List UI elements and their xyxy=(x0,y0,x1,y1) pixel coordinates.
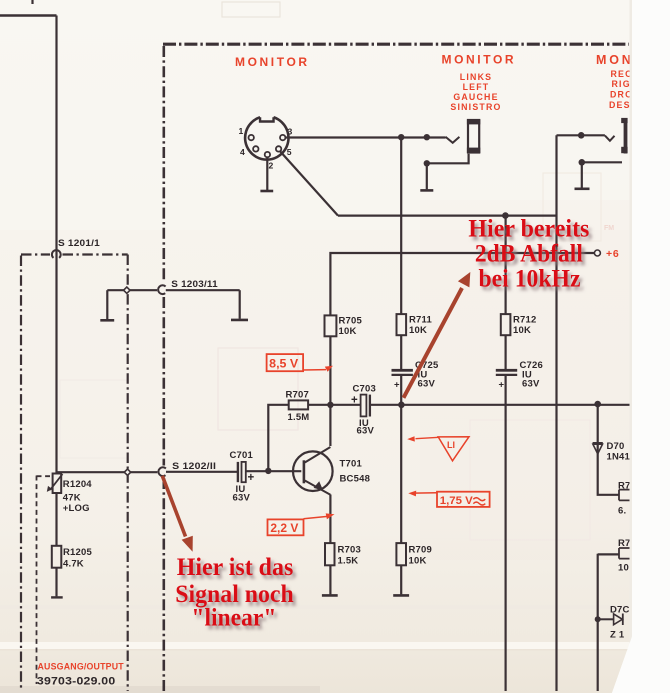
svg-text:10K: 10K xyxy=(409,325,427,336)
svg-text:+LOG: +LOG xyxy=(63,503,90,514)
svg-text:47K: 47K xyxy=(63,493,81,504)
svg-text:2dB Abfall: 2dB Abfall xyxy=(475,241,583,268)
svg-text:1,75 V: 1,75 V xyxy=(440,495,474,507)
svg-text:R709: R709 xyxy=(409,545,433,556)
svg-text:+6: +6 xyxy=(606,248,620,260)
svg-text:Z 1: Z 1 xyxy=(610,630,625,641)
svg-text:MONITOR: MONITOR xyxy=(235,55,310,69)
svg-text:bei 10kHz: bei 10kHz xyxy=(479,266,581,293)
svg-text:S 1203/11: S 1203/11 xyxy=(171,279,218,290)
svg-text:+: + xyxy=(248,472,255,484)
svg-text:10K: 10K xyxy=(513,325,531,336)
svg-text:4.7K: 4.7K xyxy=(63,559,84,570)
svg-text:1N41: 1N41 xyxy=(607,452,631,463)
svg-text:FM: FM xyxy=(604,225,614,232)
svg-text:4: 4 xyxy=(240,147,245,157)
svg-text:C701: C701 xyxy=(230,450,254,461)
svg-text:R711: R711 xyxy=(409,315,433,326)
svg-text:R712: R712 xyxy=(513,315,537,326)
svg-text:AUSGANG/OUTPUT: AUSGANG/OUTPUT xyxy=(38,662,125,672)
svg-text:2,2 V: 2,2 V xyxy=(270,521,298,535)
svg-text:D70: D70 xyxy=(607,441,625,452)
svg-text:Hier ist das: Hier ist das xyxy=(177,554,294,581)
svg-text:S 1201/1: S 1201/1 xyxy=(58,238,101,249)
svg-text:D7C: D7C xyxy=(610,605,630,616)
svg-text:10K: 10K xyxy=(409,556,427,567)
svg-text:BC548: BC548 xyxy=(340,474,371,485)
svg-text:+: + xyxy=(394,380,400,391)
svg-text:"linear": "linear" xyxy=(191,605,276,632)
svg-text:63V: 63V xyxy=(522,378,540,389)
svg-text:1: 1 xyxy=(239,126,244,136)
svg-text:6.: 6. xyxy=(618,506,626,517)
svg-text:R703: R703 xyxy=(338,545,362,556)
svg-text:SINISTRO: SINISTRO xyxy=(450,102,501,112)
svg-text:Hier bereits: Hier bereits xyxy=(468,215,589,242)
svg-text:R707: R707 xyxy=(286,390,310,401)
svg-text:R7: R7 xyxy=(618,481,631,492)
svg-text:63V: 63V xyxy=(418,378,436,389)
svg-text:+: + xyxy=(499,380,505,391)
svg-text:R705: R705 xyxy=(339,316,363,327)
svg-text:8,5 V: 8,5 V xyxy=(269,356,298,370)
svg-text:LI: LI xyxy=(447,440,455,450)
svg-text:S 1202/II: S 1202/II xyxy=(172,461,216,472)
svg-text:MONITOR: MONITOR xyxy=(442,53,517,67)
svg-text:63V: 63V xyxy=(357,426,375,437)
svg-text:LEFT: LEFT xyxy=(463,82,490,92)
svg-text:1.5K: 1.5K xyxy=(338,556,359,567)
svg-text:1.5M: 1.5M xyxy=(288,412,310,423)
svg-text:LINKS: LINKS xyxy=(460,72,492,82)
svg-text:10: 10 xyxy=(618,563,629,574)
svg-text:39703-029.00: 39703-029.00 xyxy=(37,676,115,688)
svg-text:GAUCHE: GAUCHE xyxy=(453,92,498,102)
svg-text:T701: T701 xyxy=(340,459,363,470)
svg-text:R1205: R1205 xyxy=(63,547,93,558)
svg-text:R1204: R1204 xyxy=(63,479,93,490)
svg-text:2: 2 xyxy=(269,161,274,171)
svg-text:C703: C703 xyxy=(353,384,377,395)
svg-text:+: + xyxy=(351,395,358,407)
svg-text:R7: R7 xyxy=(618,538,631,549)
svg-text:10K: 10K xyxy=(339,326,357,337)
svg-text:3: 3 xyxy=(288,127,293,137)
svg-text:63V: 63V xyxy=(233,493,251,504)
svg-text:5: 5 xyxy=(287,147,292,157)
